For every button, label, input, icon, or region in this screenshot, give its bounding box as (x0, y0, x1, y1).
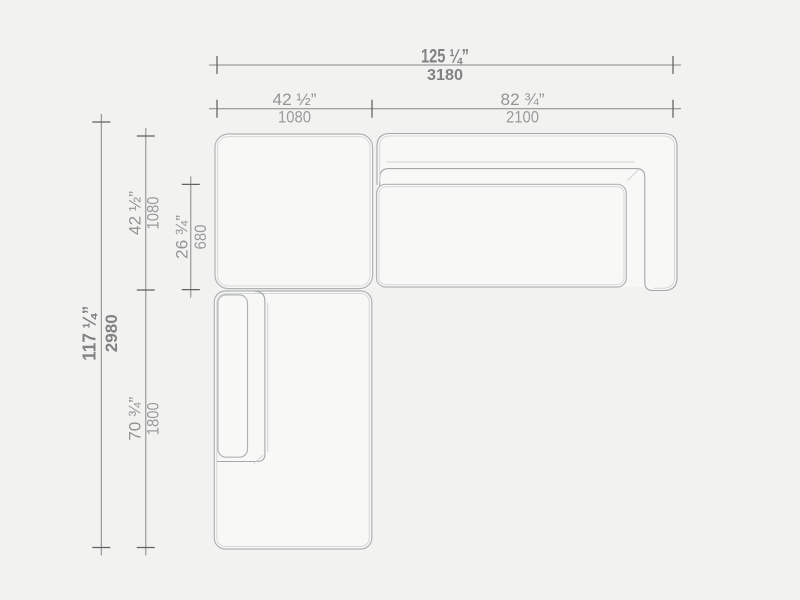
svg-text:42 ½”: 42 ½” (273, 90, 317, 109)
svg-text:82 ¾”: 82 ¾” (501, 90, 545, 109)
svg-text:42 ½”: 42 ½” (126, 191, 145, 235)
svg-text:2100: 2100 (506, 107, 539, 126)
svg-text:26 ¾”: 26 ¾” (173, 215, 192, 259)
svg-text:1080: 1080 (278, 107, 311, 126)
svg-text:3180: 3180 (427, 67, 463, 84)
svg-text:125 ¼”: 125 ¼” (421, 45, 469, 67)
svg-text:2980: 2980 (103, 314, 121, 352)
svg-text:117 ¼”: 117 ¼” (80, 306, 100, 361)
svg-text:70 ¾”: 70 ¾” (126, 396, 145, 440)
svg-text:680: 680 (191, 225, 210, 250)
svg-text:1080: 1080 (144, 197, 163, 230)
svg-text:1800: 1800 (144, 402, 163, 435)
